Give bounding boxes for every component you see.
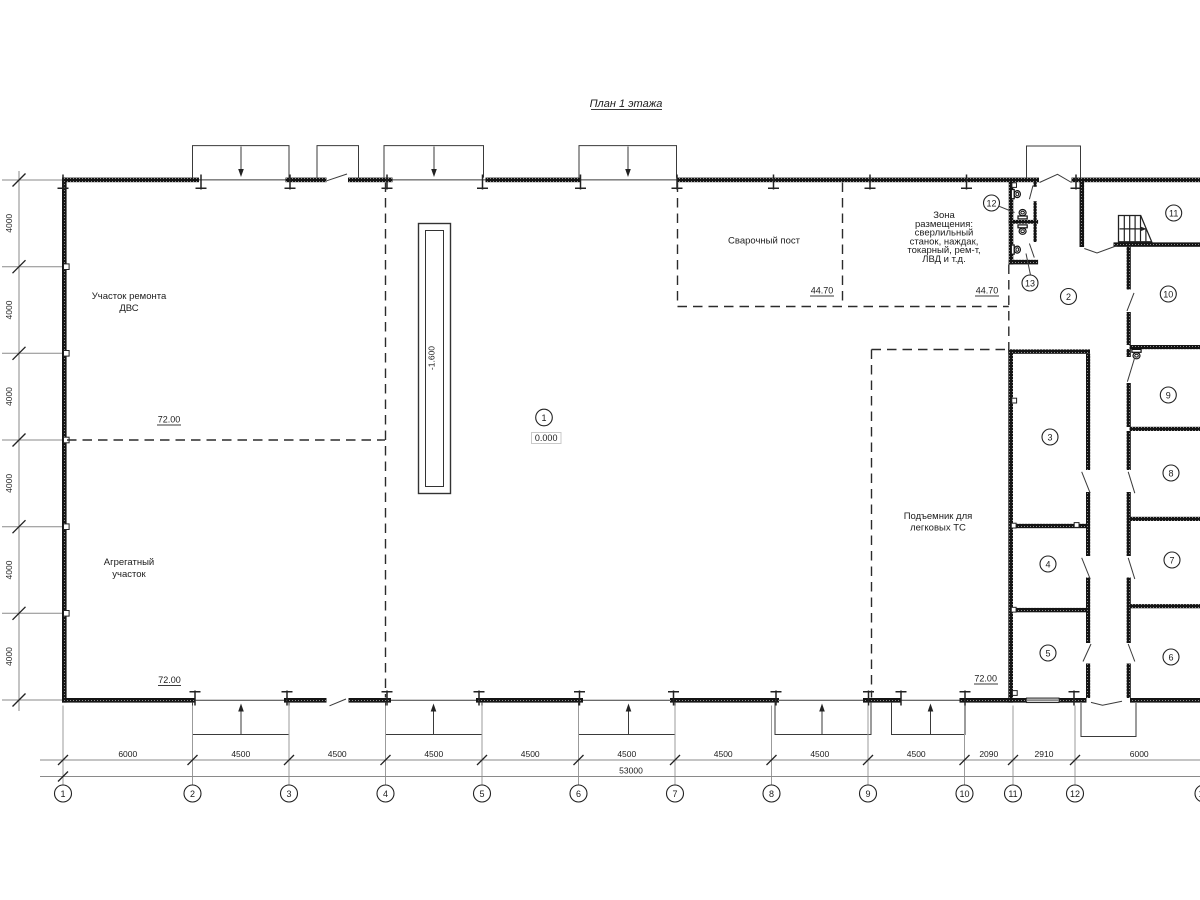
svg-text:72.00: 72.00: [158, 415, 181, 425]
svg-text:72.00: 72.00: [158, 675, 181, 685]
svg-text:0.000: 0.000: [535, 433, 558, 443]
svg-text:4000: 4000: [4, 647, 14, 666]
svg-text:4: 4: [383, 789, 388, 799]
svg-text:13: 13: [1025, 278, 1035, 288]
svg-text:4500: 4500: [424, 749, 443, 759]
svg-text:44.70: 44.70: [976, 286, 999, 296]
svg-text:2910: 2910: [1035, 749, 1054, 759]
svg-text:8: 8: [769, 789, 774, 799]
svg-text:6: 6: [576, 789, 581, 799]
svg-text:11: 11: [1169, 208, 1178, 218]
svg-text:4500: 4500: [617, 749, 636, 759]
svg-text:4500: 4500: [231, 749, 250, 759]
svg-text:4000: 4000: [4, 474, 14, 493]
svg-text:4500: 4500: [714, 749, 733, 759]
svg-text:4000: 4000: [4, 300, 14, 319]
svg-text:72.00: 72.00: [974, 674, 997, 684]
svg-text:5: 5: [479, 789, 484, 799]
svg-text:10: 10: [959, 789, 969, 799]
svg-text:2: 2: [1066, 292, 1071, 302]
svg-text:4: 4: [1045, 559, 1050, 569]
svg-text:53000: 53000: [619, 766, 643, 776]
svg-text:7: 7: [1169, 555, 1174, 565]
svg-text:2090: 2090: [979, 749, 998, 759]
svg-text:5: 5: [1045, 648, 1050, 658]
svg-text:2: 2: [190, 789, 195, 799]
svg-text:11: 11: [1008, 789, 1017, 799]
svg-text:6: 6: [1168, 652, 1173, 662]
svg-text:1: 1: [541, 413, 546, 423]
svg-text:Сварочный пост: Сварочный пост: [728, 236, 801, 247]
svg-text:4500: 4500: [521, 749, 540, 759]
svg-text:4500: 4500: [907, 749, 926, 759]
svg-text:4000: 4000: [4, 214, 14, 233]
svg-text:-1.600: -1.600: [427, 346, 437, 370]
svg-text:44.70: 44.70: [811, 286, 834, 296]
svg-text:4500: 4500: [810, 749, 829, 759]
svg-text:9: 9: [1166, 390, 1171, 400]
svg-text:3: 3: [286, 789, 291, 799]
svg-text:4000: 4000: [4, 560, 14, 579]
svg-text:10: 10: [1163, 289, 1173, 299]
svg-text:12: 12: [986, 198, 996, 208]
svg-text:8: 8: [1168, 468, 1173, 478]
svg-text:4000: 4000: [4, 387, 14, 406]
svg-text:4500: 4500: [328, 749, 347, 759]
svg-text:План 1 этажа: План 1 этажа: [590, 98, 663, 110]
svg-text:Подъемник длялегковых ТС: Подъемник длялегковых ТС: [904, 511, 973, 534]
svg-text:9: 9: [865, 789, 870, 799]
svg-text:6000: 6000: [1130, 749, 1149, 759]
svg-text:7: 7: [672, 789, 677, 799]
svg-text:12: 12: [1070, 789, 1080, 799]
svg-text:1: 1: [60, 789, 65, 799]
svg-text:3: 3: [1047, 432, 1052, 442]
svg-text:6000: 6000: [118, 749, 137, 759]
